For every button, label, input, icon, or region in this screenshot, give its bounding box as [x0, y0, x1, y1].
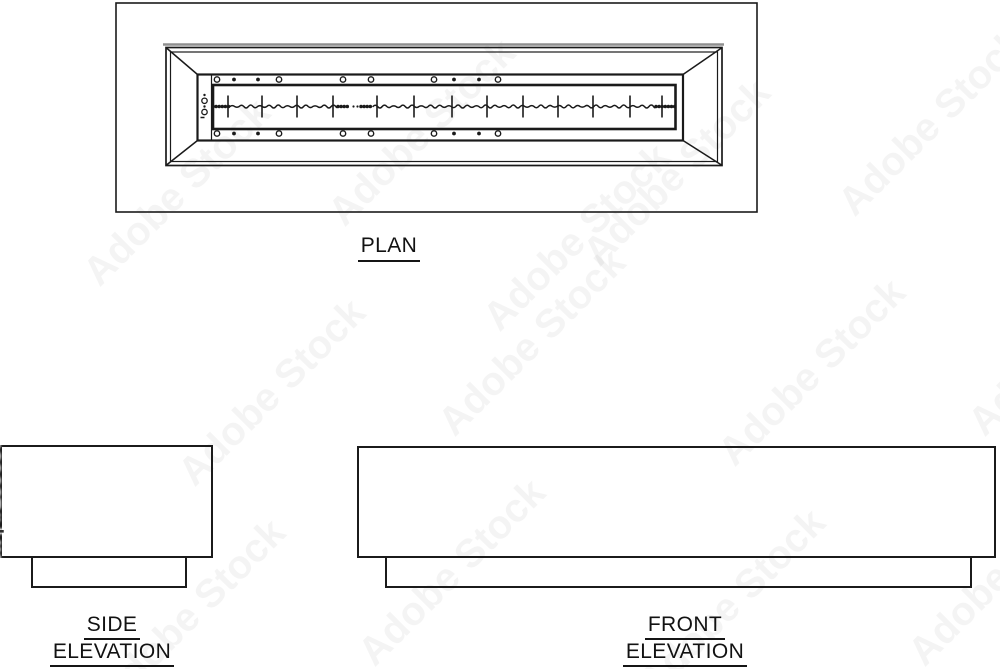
side-elevation-body — [0, 445, 213, 558]
front-elevation-body — [357, 446, 996, 558]
side-elevation-base — [31, 556, 187, 588]
side-label-line2: ELEVATION — [50, 641, 174, 667]
side-label-line1: SIDE — [84, 614, 141, 640]
stock-id-watermark: Adobe Stock | #1396578121 — [0, 390, 5, 669]
front-label-line1: FRONT — [645, 614, 725, 640]
front-label-line2: ELEVATION — [623, 641, 747, 667]
adobe-stock-watermark-tile: Adobe Stock — [710, 270, 915, 475]
plan-label-text: PLAN — [358, 234, 420, 262]
side-elevation-label: SIDE ELEVATION — [8, 614, 216, 668]
plan-view-label: PLAN — [329, 234, 449, 262]
front-elevation-base — [385, 556, 972, 588]
technical-drawing-canvas: Adobe StockAdobe StockAdobe StockAdobe S… — [0, 0, 1000, 669]
plan-view-drawing — [0, 0, 1000, 280]
front-elevation-label: FRONT ELEVATION — [581, 614, 789, 668]
